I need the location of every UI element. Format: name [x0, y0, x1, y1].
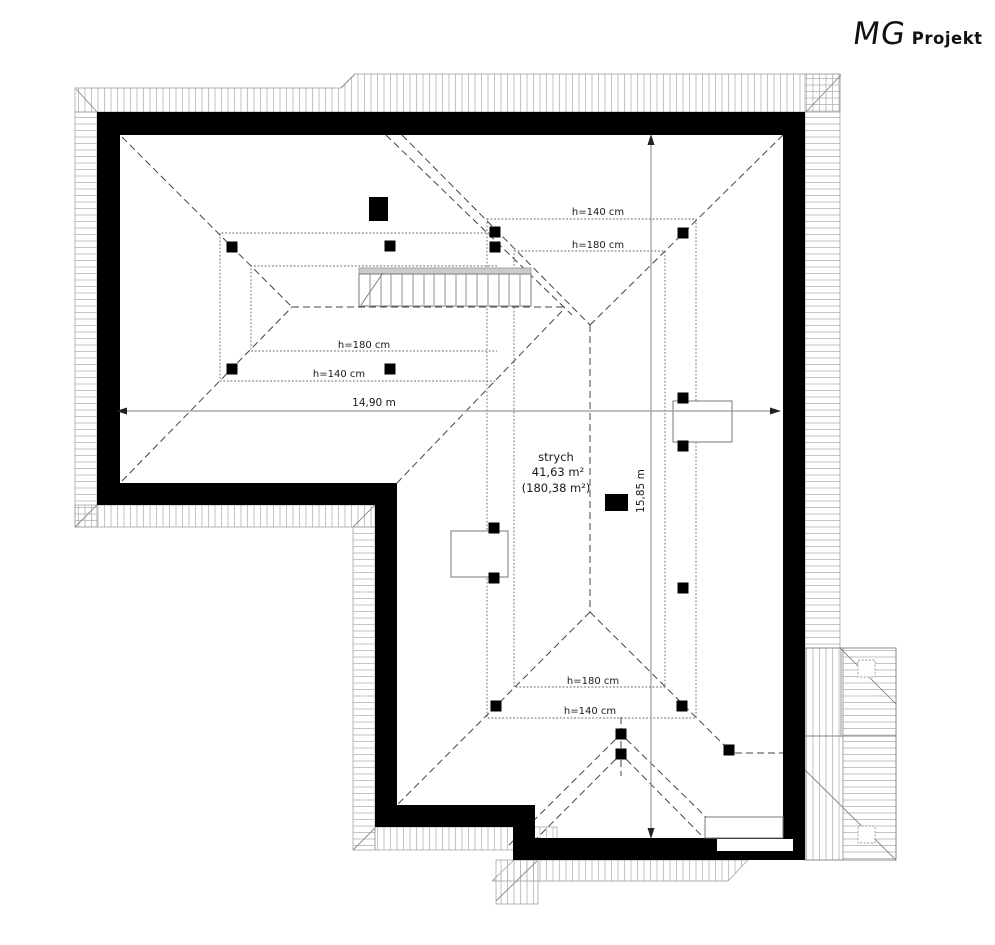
hip-top-left [122, 137, 292, 307]
plan-drawing: 14,90 m 15,85 m h=140 cm h=180 cm h=180 … [0, 0, 995, 945]
exterior-walls [97, 112, 805, 860]
depth-dimension-label: 15,85 m [635, 469, 647, 513]
roof-window-right [673, 401, 732, 442]
room-label: strych 41,63 m² (180,38 m²) [522, 450, 591, 495]
h180-label-top: h=180 cm [572, 240, 624, 251]
room-name: strych [538, 450, 574, 464]
garage-roof-left [805, 648, 843, 860]
hip-bottom-left [122, 307, 292, 481]
eaves-left-band [75, 112, 97, 527]
chimney-center [605, 494, 628, 511]
room-area-total: (180,38 m²) [522, 481, 591, 495]
h140-label-bottom: h=140 cm [564, 706, 616, 717]
chimney-left [369, 197, 388, 221]
eaves-leftleg-band [353, 527, 375, 850]
h140-label-left: h=140 cm [313, 369, 365, 380]
h180-label-left: h=180 cm [338, 340, 390, 351]
roof-vent-bottom [858, 826, 875, 843]
eaves-notch-band [75, 505, 375, 527]
bay-gable-inner [533, 754, 703, 842]
staircase [359, 268, 531, 306]
room-area-usable: 41,63 m² [532, 465, 584, 479]
roof-vent-top [858, 660, 875, 677]
bottom-window [705, 817, 793, 851]
attic-floor-plan: MGProjekt [0, 0, 995, 945]
width-dimension-label: 14,90 m [352, 397, 396, 409]
h180-label-bottom: h=180 cm [567, 676, 619, 687]
roof-window-left [451, 531, 508, 577]
h140-label-top: h=140 cm [572, 207, 624, 218]
eaves-right-band [805, 74, 840, 648]
roof-windows [451, 401, 732, 577]
eaves-top-band [75, 74, 840, 112]
